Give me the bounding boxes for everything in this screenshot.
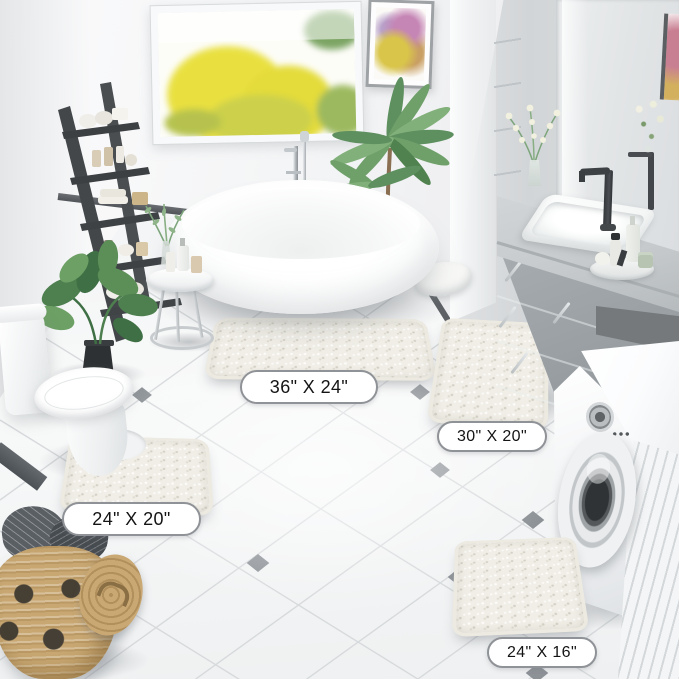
mirror-reflected-faucet bbox=[648, 152, 654, 210]
bathroom-product-photo: 36" X 24" 30" X 20" 24" X 20" 24" X 16" bbox=[0, 0, 679, 679]
dimension-label-36x24: 36" X 24" bbox=[240, 370, 378, 404]
tub-faucet-spout bbox=[284, 148, 297, 152]
sink-faucet-tip bbox=[579, 171, 585, 182]
rug-24x16 bbox=[452, 537, 590, 637]
wall-art-right-edge bbox=[660, 14, 679, 101]
dimension-label-30x20: 30" X 20" bbox=[437, 421, 547, 452]
side-table-base bbox=[150, 326, 214, 350]
sink-faucet-base bbox=[600, 224, 616, 231]
dimension-label-24x16: 24" X 16" bbox=[487, 637, 597, 668]
counter-flower-vase-sprigs bbox=[496, 92, 572, 168]
dimension-label-24x20: 24" X 20" bbox=[62, 502, 201, 536]
candle bbox=[166, 252, 175, 272]
tub-faucet-handle bbox=[286, 171, 301, 174]
cream-jar bbox=[638, 252, 653, 268]
mirror-reflected-flowers bbox=[626, 98, 670, 160]
bath-sponge bbox=[595, 252, 610, 265]
counter-vase bbox=[528, 160, 541, 186]
soap-dispenser bbox=[177, 245, 189, 271]
candle bbox=[191, 256, 202, 273]
rug-30x20 bbox=[426, 318, 548, 430]
tub-faucet-head bbox=[300, 131, 309, 142]
